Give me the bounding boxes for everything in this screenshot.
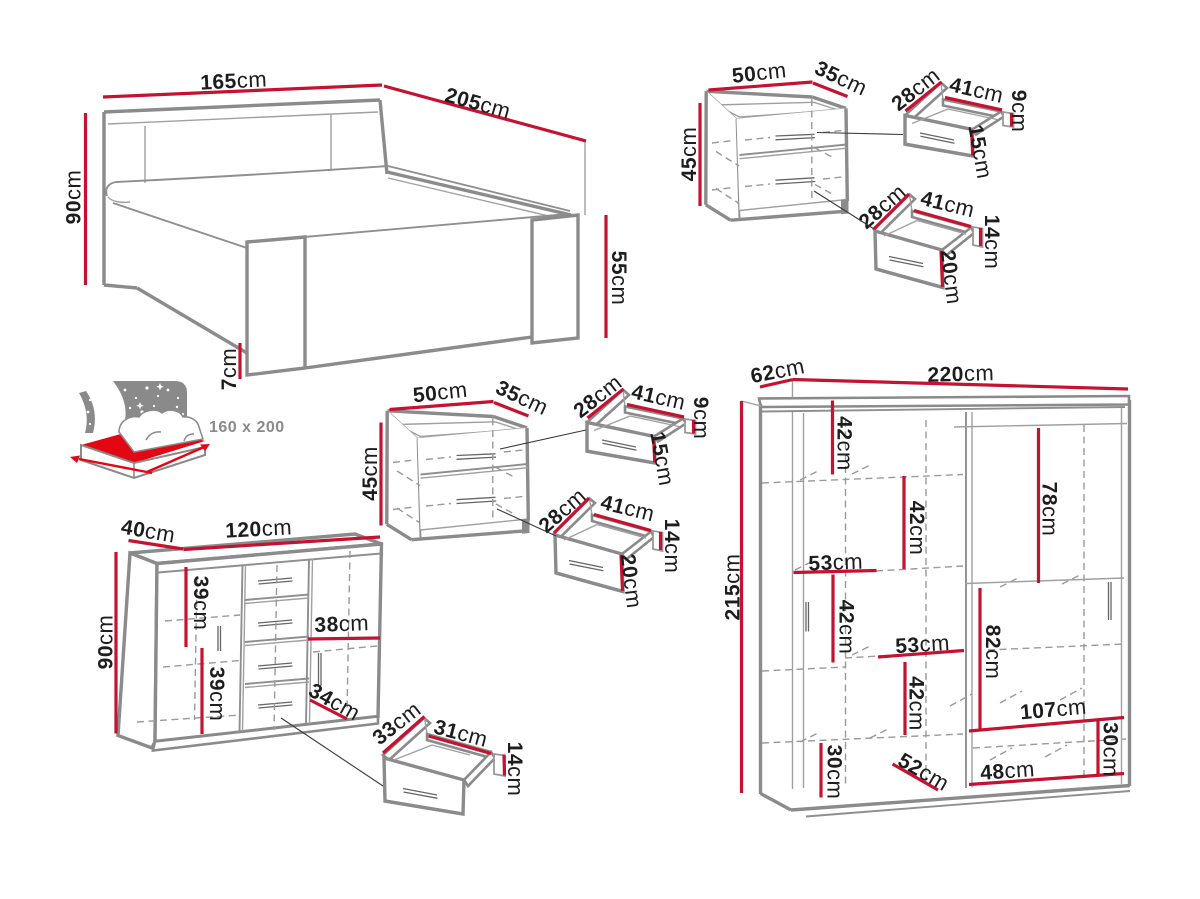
svg-text:30cm: 30cm [1099,722,1124,777]
svg-text:39cm: 39cm [189,576,214,631]
svg-text:215cm: 215cm [720,554,745,621]
svg-text:165cm: 165cm [200,66,268,94]
svg-text:48cm: 48cm [979,756,1035,785]
svg-text:78cm: 78cm [1038,482,1063,537]
svg-text:39cm: 39cm [205,667,230,722]
svg-text:90cm: 90cm [93,615,118,670]
svg-text:160 x 200: 160 x 200 [209,419,285,436]
svg-text:30cm: 30cm [823,745,848,800]
svg-text:42cm: 42cm [905,676,930,731]
svg-text:53cm: 53cm [894,630,950,658]
svg-text:42cm: 42cm [905,501,930,556]
svg-text:38cm: 38cm [314,610,370,637]
svg-text:220cm: 220cm [927,360,995,387]
svg-text:14cm: 14cm [503,742,528,797]
svg-text:42cm: 42cm [833,416,858,471]
svg-text:42cm: 42cm [835,600,860,655]
svg-text:120cm: 120cm [225,514,293,542]
svg-text:53cm: 53cm [808,549,864,576]
svg-text:90cm: 90cm [61,170,86,225]
svg-text:7cm: 7cm [216,348,241,391]
svg-text:82cm: 82cm [981,625,1006,680]
svg-text:55cm: 55cm [607,251,632,306]
